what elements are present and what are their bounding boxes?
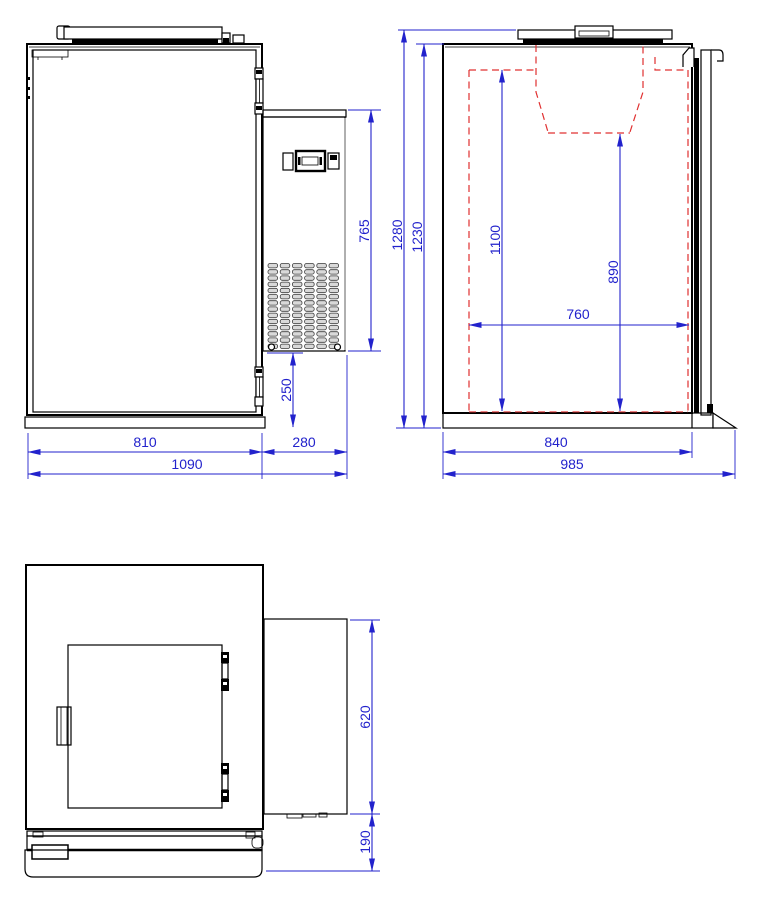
body-side-outline	[443, 44, 692, 413]
grille-louver	[329, 295, 339, 299]
grille-louver	[317, 295, 327, 299]
grille-louver	[317, 276, 327, 280]
grille-louver	[329, 307, 339, 311]
dim-label-total-depth: 985	[560, 456, 584, 472]
grille-louver	[317, 326, 327, 330]
grille-louver	[268, 338, 278, 342]
grille-louver	[280, 326, 290, 330]
plan-view	[25, 565, 347, 877]
cabinet-base	[25, 417, 265, 428]
light-switch-rocker	[330, 155, 337, 160]
grille-louver	[280, 295, 290, 299]
left-edge-mark	[26, 87, 30, 90]
condensing-unit-front	[263, 110, 346, 351]
lid-hinge-bracket	[233, 35, 244, 43]
lid	[64, 27, 222, 39]
door-hinge-lower	[255, 367, 263, 406]
door-hinge-upper	[255, 68, 263, 114]
grille-louver	[305, 307, 315, 311]
grille-louver	[268, 288, 278, 292]
grille-louver	[305, 344, 315, 348]
condenser-top-panel	[263, 110, 346, 117]
dim-label-interior-height: 1100	[487, 225, 503, 255]
grille-screw-right	[335, 344, 341, 350]
grille-louver	[292, 270, 302, 274]
dim-label-total-height: 1280	[389, 219, 405, 250]
grille-louver	[292, 282, 302, 286]
grille-louver	[268, 276, 278, 280]
condenser-grille-louvers	[268, 264, 339, 349]
drawing-page: 765 250 810 280 1090	[0, 0, 768, 914]
grille-louver	[280, 338, 290, 342]
grille-louver	[305, 319, 315, 323]
grille-louver	[317, 301, 327, 305]
grille-louver	[305, 276, 315, 280]
grille-louver	[305, 326, 315, 330]
left-edge-mark	[26, 96, 30, 99]
grille-louver	[329, 264, 339, 268]
dim-label-interior-depth: 760	[566, 306, 590, 322]
power-switch	[283, 153, 293, 170]
grille-louver	[305, 313, 315, 317]
grille-louver	[305, 338, 315, 342]
grille-louver	[329, 276, 339, 280]
grille-louver	[268, 326, 278, 330]
grille-louver	[329, 313, 339, 317]
grille-louver	[329, 301, 339, 305]
plan-door-handle	[32, 845, 68, 859]
grille-louver	[317, 264, 327, 268]
grille-louver	[280, 313, 290, 317]
grille-louver	[292, 313, 302, 317]
door-outer-panel	[701, 50, 711, 415]
grille-louver	[280, 301, 290, 305]
technical-drawing-canvas: 765 250 810 280 1090	[0, 0, 768, 914]
grille-louver	[292, 264, 302, 268]
plan-door-front	[25, 831, 263, 877]
grille-louver	[317, 313, 327, 317]
grille-louver	[305, 301, 315, 305]
grille-louver	[268, 264, 278, 268]
plan-condensing-unit	[264, 619, 347, 814]
dim-label-body-depth: 840	[544, 434, 568, 450]
grille-louver	[317, 307, 327, 311]
grille-louver	[305, 295, 315, 299]
grille-louver	[305, 332, 315, 336]
dim-label-condenser-depth: 620	[357, 705, 373, 729]
control-panel	[283, 151, 339, 171]
grille-louver	[317, 282, 327, 286]
dim-label-interior-height-under-hopper: 890	[605, 260, 621, 284]
grille-louver	[280, 319, 290, 323]
grille-louver	[305, 288, 315, 292]
grille-louver	[329, 288, 339, 292]
grille-louver	[329, 326, 339, 330]
base-ramp	[713, 413, 736, 428]
grille-louver	[292, 307, 302, 311]
grille-louver	[292, 319, 302, 323]
grille-louver	[329, 338, 339, 342]
grille-louver	[268, 295, 278, 299]
grille-louver	[292, 338, 302, 342]
grille-louver	[268, 282, 278, 286]
lid-hinge-pin	[223, 38, 229, 43]
grille-louver	[305, 270, 315, 274]
grille-louver	[280, 332, 290, 336]
door-top-hook	[711, 50, 723, 61]
front-view	[25, 26, 265, 428]
left-edge-mark	[26, 77, 30, 80]
grille-louver	[280, 307, 290, 311]
controller-button-right	[320, 157, 323, 165]
grille-louver	[292, 276, 302, 280]
grille-louver	[317, 338, 327, 342]
grille-louver	[305, 282, 315, 286]
grille-louver	[317, 270, 327, 274]
grille-louver	[317, 332, 327, 336]
grille-louver	[305, 264, 315, 268]
grille-louver	[280, 288, 290, 292]
grille-louver	[280, 344, 290, 348]
grille-louver	[268, 319, 278, 323]
grille-louver	[317, 344, 327, 348]
grille-louver	[268, 270, 278, 274]
dim-label-condenser-width: 280	[292, 434, 316, 450]
grille-louver	[268, 307, 278, 311]
dim-label-cabinet-width: 810	[133, 434, 157, 450]
dim-label-body-height: 1230	[409, 221, 425, 252]
grille-louver	[292, 288, 302, 292]
grille-louver	[292, 301, 302, 305]
grille-louver	[329, 282, 339, 286]
dim-label-total-width: 1090	[171, 456, 202, 472]
base-side	[443, 413, 713, 428]
grille-louver	[268, 332, 278, 336]
grille-louver	[292, 295, 302, 299]
grille-louver	[329, 270, 339, 274]
grille-louver	[292, 326, 302, 330]
grille-louver	[317, 319, 327, 323]
grille-louver	[280, 270, 290, 274]
dim-label-base-height: 250	[278, 378, 294, 402]
grille-louver	[280, 276, 290, 280]
grille-louver	[329, 332, 339, 336]
grille-louver	[280, 282, 290, 286]
plan-door-hook	[252, 837, 263, 848]
dim-label-condenser-height: 765	[356, 219, 372, 243]
grille-louver	[317, 288, 327, 292]
cabinet-outline	[27, 44, 262, 415]
grille-louver	[329, 319, 339, 323]
grille-louver	[268, 313, 278, 317]
grille-louver	[268, 301, 278, 305]
door-bottom-block	[707, 404, 713, 413]
plan-view-dimensions: 620 190	[266, 620, 380, 871]
grille-louver	[280, 264, 290, 268]
grille-louver	[292, 344, 302, 348]
door-slab	[694, 58, 699, 413]
grille-louver	[292, 332, 302, 336]
grille-screw-left	[269, 344, 275, 350]
controller-button-left	[298, 157, 301, 165]
dim-label-door-front-depth: 190	[357, 830, 373, 854]
